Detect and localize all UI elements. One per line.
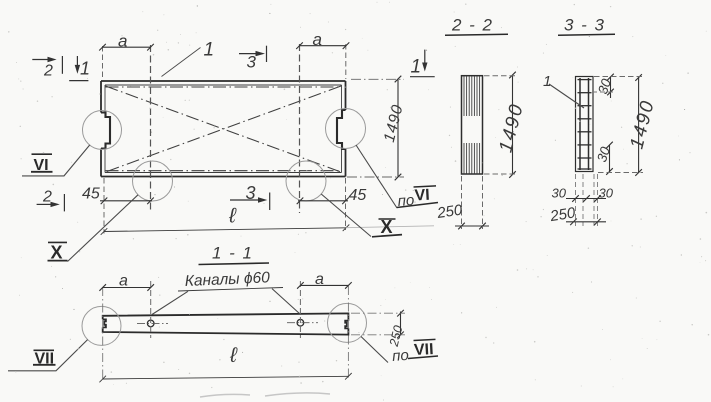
svg-text:ℓ: ℓ — [228, 205, 237, 228]
svg-text:2 - 2: 2 - 2 — [451, 16, 494, 35]
svg-text:3: 3 — [247, 53, 257, 72]
svg-text:1490: 1490 — [495, 101, 528, 155]
svg-text:250: 250 — [387, 324, 406, 349]
svg-text:45: 45 — [82, 186, 100, 203]
svg-text:a: a — [118, 32, 127, 51]
svg-text:1: 1 — [204, 40, 215, 61]
svg-text:30: 30 — [595, 77, 614, 96]
svg-text:VI: VI — [414, 187, 430, 205]
svg-text:X: X — [51, 243, 63, 263]
svg-text:1 - 1: 1 - 1 — [212, 244, 254, 263]
svg-text:ℓ: ℓ — [229, 344, 238, 367]
svg-text:3 - 3: 3 - 3 — [564, 16, 606, 35]
svg-text:2: 2 — [42, 189, 52, 206]
svg-text:по: по — [392, 347, 410, 365]
svg-text:3: 3 — [246, 183, 256, 203]
svg-text:X: X — [381, 217, 393, 237]
svg-text:45: 45 — [349, 187, 367, 204]
svg-text:1490: 1490 — [626, 97, 659, 151]
svg-text:30: 30 — [594, 145, 613, 164]
svg-text:Каналы ϕ60: Каналы ϕ60 — [184, 269, 270, 290]
svg-text:1: 1 — [80, 59, 90, 79]
svg-text:2: 2 — [43, 63, 53, 80]
svg-text:a: a — [313, 30, 322, 49]
svg-text:1490: 1490 — [381, 103, 407, 144]
svg-text:1: 1 — [543, 73, 551, 90]
svg-text:1: 1 — [411, 57, 422, 78]
svg-text:a: a — [119, 273, 128, 290]
svg-text:30: 30 — [552, 186, 567, 201]
svg-text:a: a — [315, 271, 324, 288]
svg-text:250: 250 — [435, 202, 464, 223]
svg-text:30: 30 — [599, 186, 614, 201]
